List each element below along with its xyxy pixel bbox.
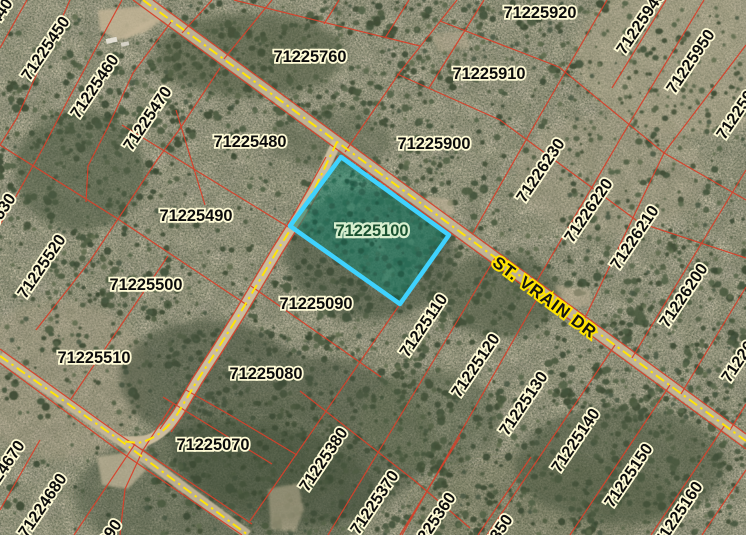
svg-text:71225760: 71225760 [274,48,347,66]
svg-text:71225900: 71225900 [398,135,471,153]
svg-text:71225100: 71225100 [336,222,409,240]
svg-text:71225070: 71225070 [177,436,250,454]
svg-text:71225920: 71225920 [504,4,577,22]
svg-text:71225480: 71225480 [214,133,287,151]
svg-text:71225080: 71225080 [230,365,303,383]
svg-text:71225510: 71225510 [58,349,131,367]
svg-text:71225910: 71225910 [453,65,526,83]
svg-text:71225500: 71225500 [110,276,183,294]
svg-text:71225490: 71225490 [160,207,233,225]
svg-text:71225090: 71225090 [280,295,353,313]
